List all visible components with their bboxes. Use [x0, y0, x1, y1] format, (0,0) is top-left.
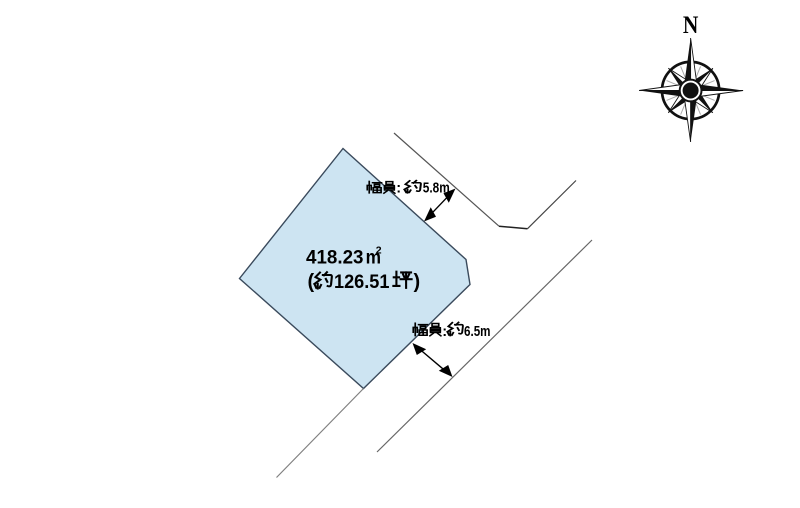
svg-text:(: ( — [308, 271, 315, 293]
svg-text::: : — [396, 181, 401, 197]
svg-text:418.23: 418.23 — [306, 248, 364, 269]
svg-text:6.5m: 6.5m — [464, 324, 491, 340]
svg-text:): ) — [414, 271, 421, 293]
svg-text:5.8m: 5.8m — [423, 181, 450, 197]
svg-text:126.51: 126.51 — [334, 272, 390, 293]
svg-text:N: N — [683, 12, 699, 39]
svg-text:2: 2 — [376, 245, 382, 257]
